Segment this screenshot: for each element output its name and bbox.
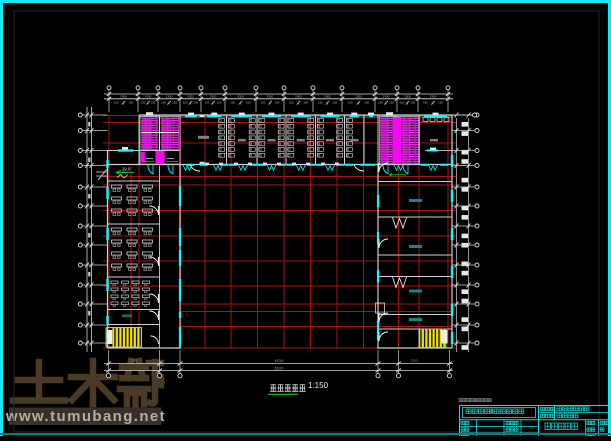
svg-text:150: 150 bbox=[128, 100, 133, 104]
svg-text:150: 150 bbox=[348, 100, 353, 104]
svg-text:1:150: 1:150 bbox=[308, 381, 329, 390]
svg-text:3300: 3300 bbox=[355, 94, 362, 98]
svg-text:3300: 3300 bbox=[187, 94, 194, 98]
svg-text:3300: 3300 bbox=[145, 94, 152, 98]
svg-text:150: 150 bbox=[205, 100, 210, 104]
svg-text:3300: 3300 bbox=[404, 94, 411, 98]
svg-text:7200: 7200 bbox=[130, 359, 137, 363]
svg-text:150: 150 bbox=[332, 100, 337, 104]
svg-text:3300: 3300 bbox=[383, 94, 390, 98]
svg-text:150: 150 bbox=[183, 100, 188, 104]
svg-text:3300: 3300 bbox=[267, 94, 274, 98]
svg-text:3300: 3300 bbox=[324, 94, 331, 98]
svg-text:150: 150 bbox=[246, 100, 251, 104]
svg-text:150: 150 bbox=[389, 100, 394, 104]
svg-text:150: 150 bbox=[230, 100, 235, 104]
svg-text:7200: 7200 bbox=[410, 359, 417, 363]
svg-text:150: 150 bbox=[410, 100, 415, 104]
svg-text:150: 150 bbox=[217, 100, 222, 104]
svg-text:150: 150 bbox=[193, 100, 198, 104]
svg-text:www.tumubang.net: www.tumubang.net bbox=[5, 408, 166, 425]
svg-text:150: 150 bbox=[318, 100, 323, 104]
svg-text:3300: 3300 bbox=[120, 94, 127, 98]
svg-text:150: 150 bbox=[364, 100, 369, 104]
svg-text:150: 150 bbox=[172, 100, 177, 104]
svg-text:3300: 3300 bbox=[430, 94, 437, 98]
svg-text:3300: 3300 bbox=[166, 94, 173, 98]
svg-text:3300: 3300 bbox=[237, 94, 244, 98]
svg-text:3300: 3300 bbox=[295, 94, 302, 98]
svg-text:3300: 3300 bbox=[210, 94, 217, 98]
svg-text:150: 150 bbox=[114, 100, 119, 104]
svg-text:150: 150 bbox=[423, 100, 428, 104]
svg-text:150: 150 bbox=[289, 100, 294, 104]
svg-text:150: 150 bbox=[400, 100, 405, 104]
svg-text:150: 150 bbox=[378, 100, 383, 104]
svg-text:52000: 52000 bbox=[275, 367, 284, 371]
svg-text:150: 150 bbox=[303, 100, 308, 104]
svg-text:49200: 49200 bbox=[275, 359, 284, 363]
svg-text:150: 150 bbox=[438, 100, 443, 104]
svg-text:150: 150 bbox=[275, 100, 280, 104]
svg-text:150: 150 bbox=[141, 100, 146, 104]
svg-text:150: 150 bbox=[161, 100, 166, 104]
svg-text:150: 150 bbox=[261, 100, 266, 104]
svg-text:150: 150 bbox=[151, 100, 156, 104]
svg-text:19.0: 19.0 bbox=[122, 167, 131, 172]
